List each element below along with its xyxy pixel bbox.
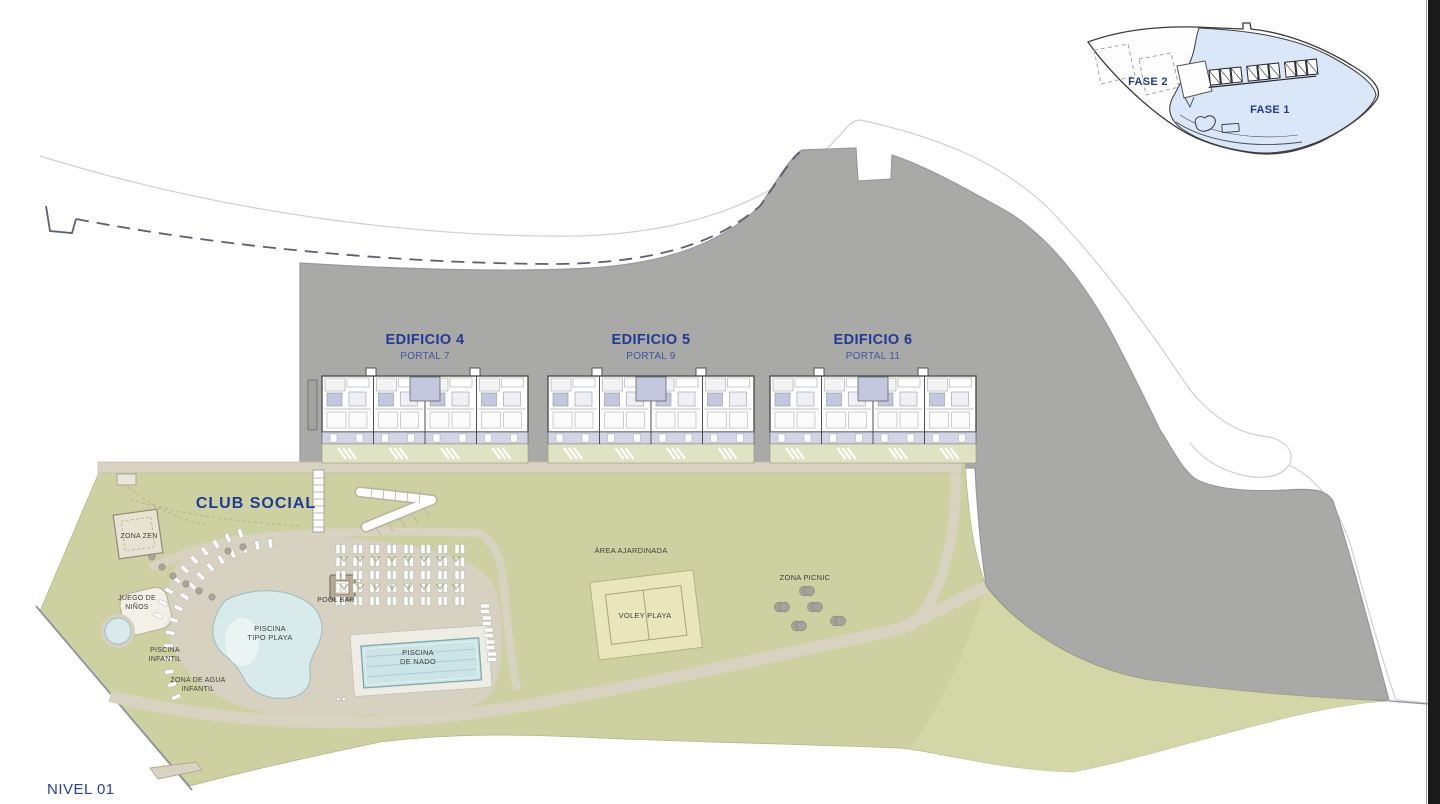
right-edge-bar [1428, 0, 1440, 804]
building-6-portal-label: PORTAL 11 [846, 351, 901, 364]
building-6-label: EDIFICIO 6 [834, 331, 913, 349]
beach-pool-label-line2: TIPO PLAYA [247, 633, 292, 642]
site-plan: EDIFICIO 4 PORTAL 7 EDIFICIO 5 PORTAL 9 … [0, 0, 1440, 804]
building-4-label: EDIFICIO 4 [386, 331, 465, 349]
fase-2-label: FASE 2 [1128, 76, 1168, 90]
lap-pool-label: PISCINA DE NADO [400, 648, 436, 667]
pool-bar-label: POOL BAR [317, 597, 355, 606]
club-social-label: CLUB SOCIAL [196, 494, 316, 514]
playground-label: JUEGO DE NIÑOS [118, 595, 156, 613]
building-4-portal-label: PORTAL 7 [400, 351, 449, 364]
kids-pool [101, 614, 135, 648]
garden-area-label: ÁREA AJARDINADA [595, 546, 668, 555]
beach-pool-label-line1: PISCINA [247, 624, 292, 633]
kids-pool-label-line1: PISCINA [149, 647, 182, 656]
building-5-label: EDIFICIO 5 [612, 331, 691, 349]
beach-pool-label: PISCINA TIPO PLAYA [247, 624, 292, 643]
kids-water-zone-line1: ZONA DE AGUA [170, 677, 225, 686]
playground-label-line2: NIÑOS [118, 604, 156, 613]
picnic-zone-label: ZONA PICNIC [780, 573, 831, 582]
deck-dot [342, 697, 346, 701]
zona-zen-label: ZONA ZEN [120, 533, 157, 542]
kids-pool-label: PISCINA INFANTIL [149, 647, 182, 665]
lap-pool-label-line2: DE NADO [400, 657, 436, 666]
entry-structure [117, 474, 136, 485]
level-label: NIVEL 01 [47, 781, 115, 800]
deck-dot [336, 697, 340, 701]
kids-water-zone-label: ZONA DE AGUA INFANTIL [170, 677, 225, 695]
playground-label-line1: JUEGO DE [118, 595, 156, 604]
building-footprints [308, 368, 976, 463]
lap-pool-label-line1: PISCINA [400, 648, 436, 657]
building-5-portal-label: PORTAL 9 [626, 351, 675, 364]
kids-water-zone-line2: INFANTIL [170, 686, 225, 695]
fase-1-label: FASE 1 [1250, 104, 1290, 118]
volleyball-label: VOLEY PLAYA [619, 611, 672, 620]
kids-pool-label-line2: INFANTIL [149, 656, 182, 665]
